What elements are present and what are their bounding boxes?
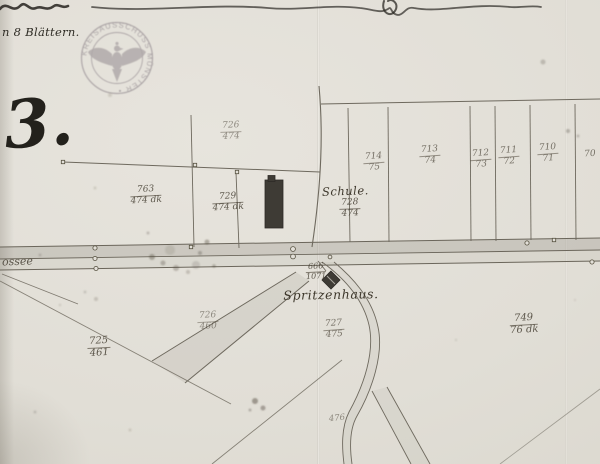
- parcel-label-476: 476: [326, 413, 347, 424]
- parcel-label-725-461: 725 461: [87, 336, 111, 360]
- parcel-numerator: 476: [326, 413, 347, 424]
- parcel-denominator: 474 dk: [212, 202, 244, 214]
- parcel-label-749-76: 749 76 dk: [509, 313, 539, 338]
- parcel-label-713-74: 713 74: [419, 145, 442, 167]
- parcel-label-726-474: 726 474: [220, 121, 242, 143]
- blaettern-note: n 8 Blättern.: [2, 25, 80, 39]
- parcel-denominator: 75: [363, 163, 385, 175]
- parcel-numerator: 70: [582, 150, 598, 161]
- sheet-number: 3.: [2, 88, 75, 159]
- parcel-label-711-72: 711 72: [498, 146, 521, 168]
- parcel-denominator: 74: [419, 156, 441, 168]
- schule-label: Schule.: [322, 183, 369, 199]
- parcel-label-727-475: 727 475: [323, 319, 346, 341]
- parcel-denominator: 474: [339, 209, 361, 220]
- parcel-label-763-474: 763 474 dk: [130, 185, 162, 208]
- parcel-label-729-474: 729 474 dk: [212, 192, 244, 215]
- parcel-label-70: 70: [582, 150, 598, 161]
- parcel-denominator: 76 dk: [510, 325, 539, 338]
- cadastral-map-sheet: KREISAUSSCHUSS MÜNSTER •: [0, 0, 600, 464]
- parcel-denominator: 1071: [306, 272, 327, 282]
- parcel-label-726-460: 726 460: [197, 311, 219, 333]
- parcel-denominator: 461: [87, 348, 111, 360]
- spritzenhaus-label: Spritzenhaus.: [283, 286, 379, 303]
- parcel-denominator: 73: [470, 160, 492, 172]
- parcel-label-728-474: 728 474: [339, 198, 361, 220]
- parcel-denominator: 475: [323, 330, 345, 342]
- parcel-label-712-73: 712 73: [470, 149, 493, 171]
- parcel-label-714-75: 714 75: [363, 152, 386, 174]
- parcel-label-666-1071: 666 1071: [305, 262, 326, 282]
- parcel-denominator: 474 dk: [130, 195, 162, 207]
- parcel-denominator: 460: [197, 322, 219, 333]
- road-name-label: ossee: [2, 254, 33, 268]
- parcel-denominator: 474: [220, 132, 242, 143]
- map-labels: 3. n 8 Blättern. ossee 726 474 763 474 d…: [0, 0, 600, 464]
- parcel-denominator: 71: [537, 154, 559, 166]
- parcel-denominator: 72: [498, 157, 520, 169]
- parcel-label-710-71: 710 71: [537, 143, 560, 165]
